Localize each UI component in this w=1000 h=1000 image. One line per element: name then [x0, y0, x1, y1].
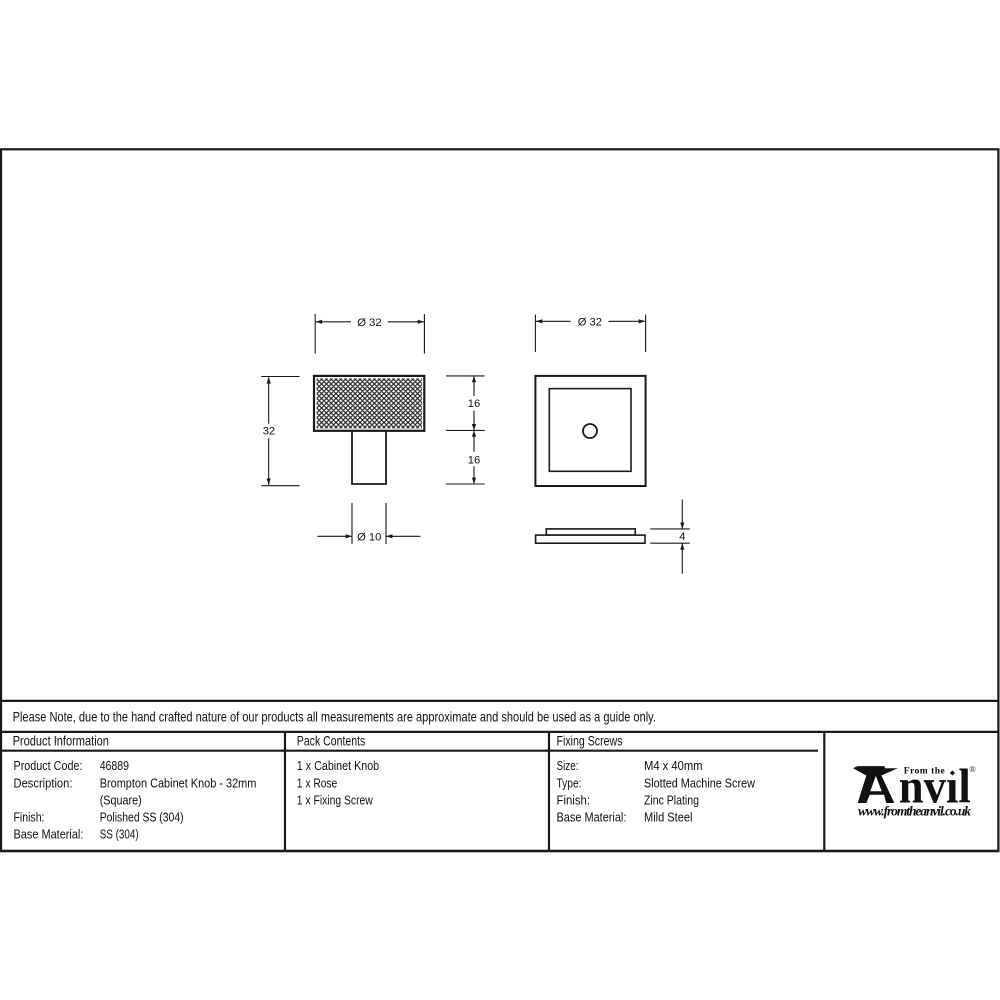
svg-text:Base Material:: Base Material:	[14, 826, 84, 841]
svg-text:Product Code:: Product Code:	[14, 758, 83, 773]
svg-text:Ø 32: Ø 32	[578, 317, 602, 329]
svg-text:®: ®	[969, 764, 976, 774]
svg-text:Pack Contents: Pack Contents	[297, 733, 365, 749]
svg-text:SS (304): SS (304)	[100, 827, 139, 842]
svg-text:46889: 46889	[100, 758, 130, 773]
svg-text:Brompton Cabinet Knob - 32mm: Brompton Cabinet Knob - 32mm	[100, 775, 257, 790]
svg-text:Please Note, due to the hand c: Please Note, due to the hand crafted nat…	[13, 709, 656, 725]
svg-text:1 x Rose: 1 x Rose	[297, 775, 338, 791]
svg-text:Type:: Type:	[557, 775, 582, 791]
svg-text:Finish:: Finish:	[557, 793, 590, 808]
svg-text:32: 32	[263, 426, 275, 438]
svg-text:16: 16	[468, 398, 480, 410]
svg-text:Base Material:: Base Material:	[557, 810, 627, 825]
svg-text:Product Information: Product Information	[13, 734, 110, 749]
svg-text:1 x Fixing Screw: 1 x Fixing Screw	[297, 792, 373, 808]
svg-text:Size:: Size:	[557, 759, 579, 774]
svg-text:From the: From the	[904, 767, 946, 777]
svg-text:(Square): (Square)	[100, 793, 142, 808]
svg-text:Zinc Plating: Zinc Plating	[644, 792, 699, 807]
svg-text:1 x Cabinet Knob: 1 x Cabinet Knob	[297, 758, 380, 773]
svg-text:Slotted Machine Screw: Slotted Machine Screw	[644, 775, 755, 790]
svg-text:Finish:: Finish:	[14, 809, 45, 824]
svg-text:Polished SS (304): Polished SS (304)	[100, 809, 184, 825]
svg-text:16: 16	[468, 454, 480, 466]
svg-text:Description:: Description:	[14, 776, 73, 791]
svg-text:Fixing Screws: Fixing Screws	[557, 733, 623, 749]
svg-text:Ø 32: Ø 32	[357, 317, 381, 329]
svg-text:Ø 10: Ø 10	[357, 531, 381, 543]
svg-text:www.fromtheanvil.co.uk: www.fromtheanvil.co.uk	[858, 804, 971, 819]
svg-text:M4 x 40mm: M4 x 40mm	[644, 758, 702, 773]
svg-text:Mild Steel: Mild Steel	[644, 810, 692, 825]
svg-text:4: 4	[679, 531, 685, 543]
